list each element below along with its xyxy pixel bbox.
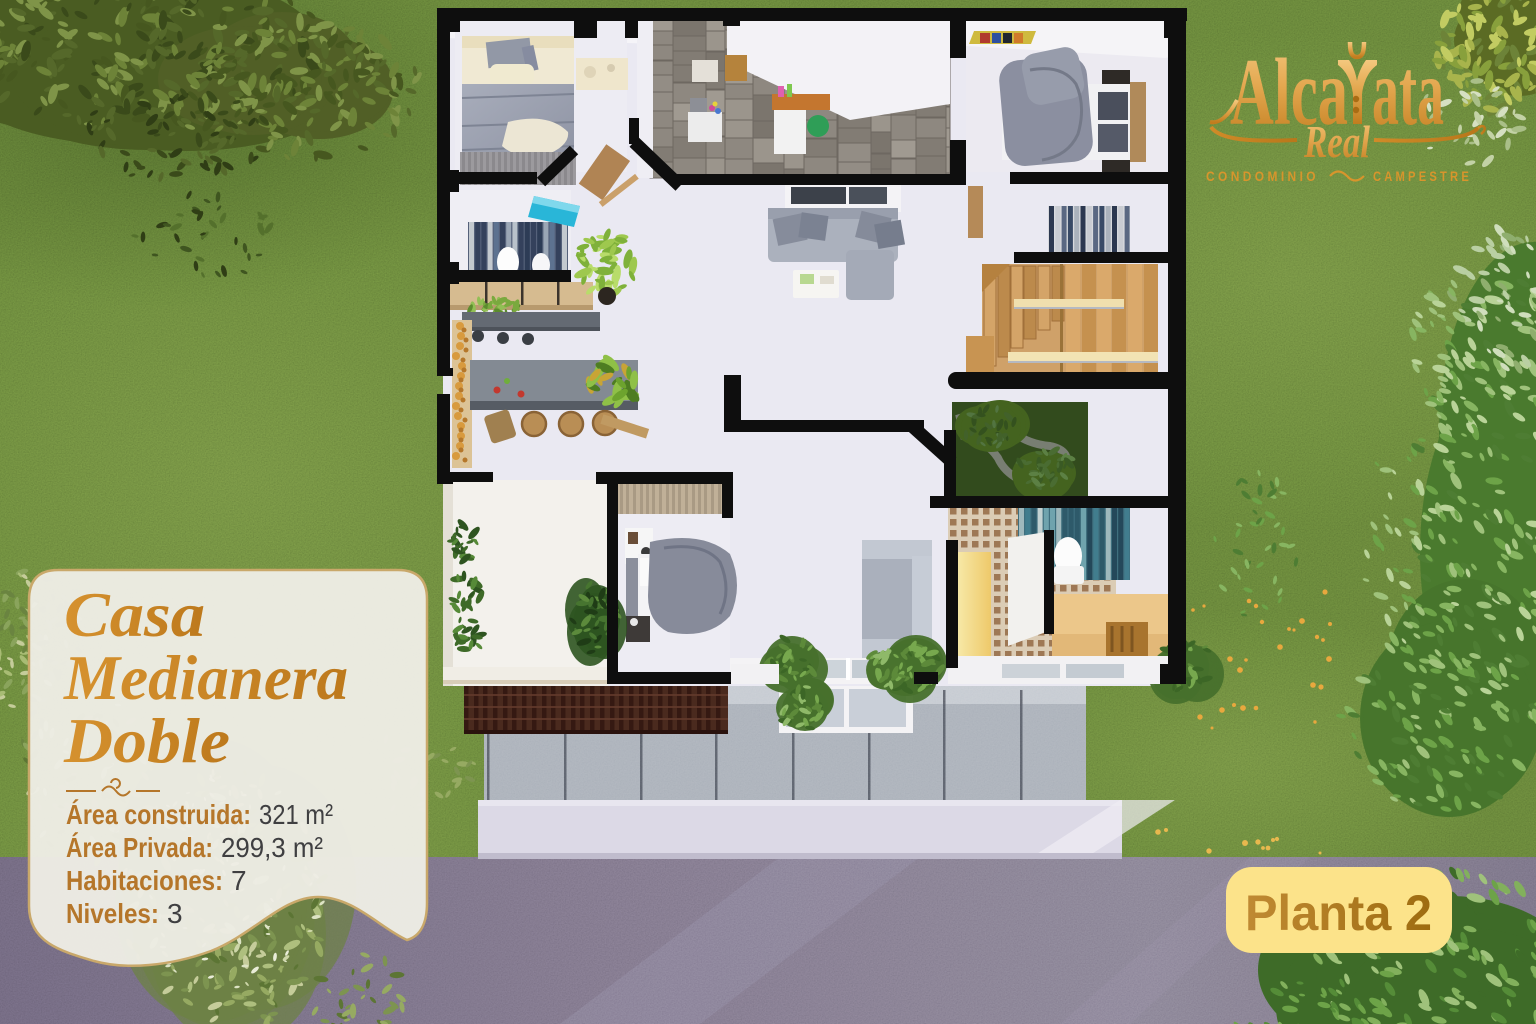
svg-text:Área construida:: Área construida: [66,799,251,830]
svg-text:Habitaciones:: Habitaciones: [66,865,223,896]
svg-text:Niveles:: Niveles: [66,898,159,929]
svg-text:CONDOMINIO: CONDOMINIO [1206,168,1319,184]
svg-text:CAMPESTRE: CAMPESTRE [1373,168,1472,184]
svg-text:Casa: Casa [64,579,205,650]
svg-text:3: 3 [167,898,183,929]
svg-text:299,3 m²: 299,3 m² [221,832,323,863]
svg-text:Real: Real [1303,116,1370,167]
svg-text:Medianera: Medianera [63,642,348,713]
svg-text:321 m²: 321 m² [259,799,333,830]
svg-text:Área Privada:: Área Privada: [66,832,213,863]
svg-text:ata: ata [1372,39,1444,145]
svg-text:7: 7 [231,865,247,896]
svg-text:Planta 2: Planta 2 [1245,885,1432,941]
svg-text:Doble: Doble [63,705,230,776]
